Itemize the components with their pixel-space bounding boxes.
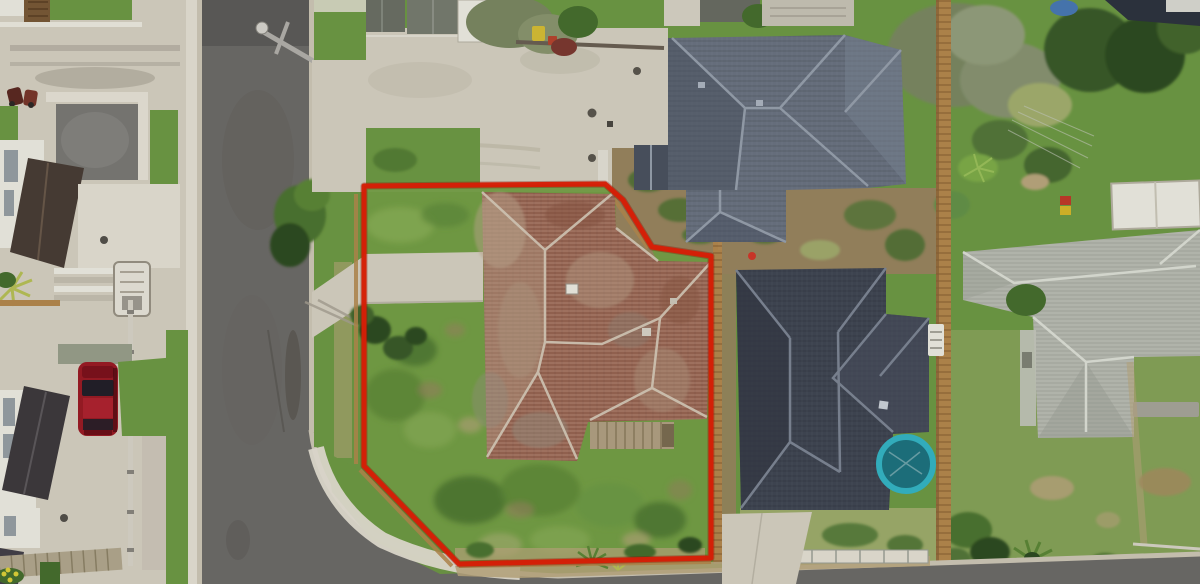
photo-grain	[0, 0, 1200, 584]
aerial-photo-canvas: Aerial photo of a corner residential lot…	[0, 0, 1200, 584]
aerial-photo: Aerial photo of a corner residential lot…	[0, 0, 1200, 584]
